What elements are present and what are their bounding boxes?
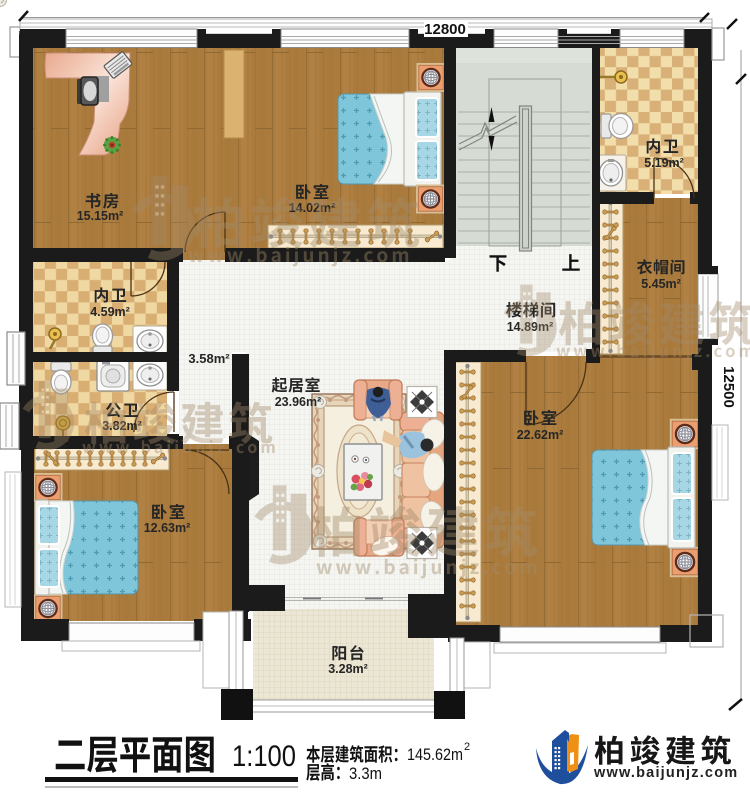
svg-text:12800: 12800 (424, 21, 466, 38)
svg-text:23.96m²: 23.96m² (275, 395, 322, 409)
svg-text:5.45m²: 5.45m² (641, 277, 681, 291)
svg-text:1:100: 1:100 (232, 740, 296, 773)
svg-text:3.58m²: 3.58m² (188, 351, 230, 366)
svg-text:4.59m²: 4.59m² (90, 305, 130, 319)
svg-text:3.3m: 3.3m (349, 764, 382, 783)
svg-text:12500: 12500 (720, 366, 737, 408)
svg-text:15.15m²: 15.15m² (77, 209, 124, 223)
svg-text:3.28m²: 3.28m² (328, 662, 368, 676)
svg-text:www.baijunjz.com: www.baijunjz.com (593, 765, 738, 781)
svg-text:145.62m: 145.62m (407, 745, 463, 764)
svg-text:22.62m²: 22.62m² (517, 428, 564, 442)
svg-text:2: 2 (464, 741, 470, 753)
svg-text:5.19m²: 5.19m² (644, 156, 684, 170)
svg-text:12.63m²: 12.63m² (144, 521, 191, 535)
